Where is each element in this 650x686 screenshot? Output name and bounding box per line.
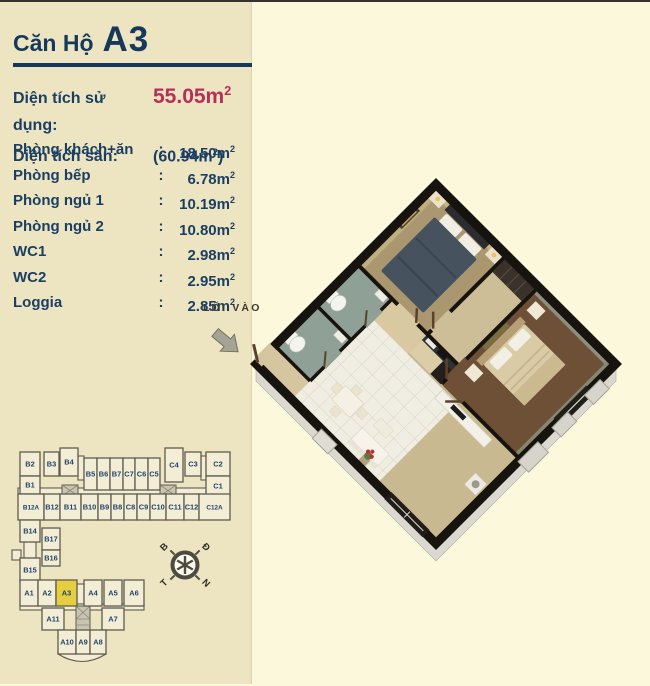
- map-unit-label: A10: [60, 638, 74, 647]
- map-unit-B12A[interactable]: B12A: [18, 494, 44, 520]
- elevator-core-icon: [76, 606, 90, 632]
- map-unit-label: C3: [188, 460, 197, 469]
- map-unit-C3[interactable]: C3: [185, 452, 201, 476]
- map-unit-C12A[interactable]: C12A: [199, 494, 230, 520]
- map-unit-A3[interactable]: A3: [56, 580, 77, 606]
- map-unit-A9[interactable]: A9: [76, 630, 90, 654]
- map-unit-label: C11: [168, 503, 181, 512]
- map-unit-B2[interactable]: B2: [20, 452, 40, 476]
- map-unit-label: A3: [62, 589, 71, 598]
- colon: :: [155, 267, 167, 293]
- room-area-value: 10.80m2: [167, 216, 235, 242]
- map-unit-B8[interactable]: B8: [111, 494, 124, 520]
- map-unit-label: B5: [86, 470, 95, 479]
- room-area-row: WC2:2.95m2: [13, 267, 235, 293]
- map-unit-label: C1: [213, 482, 222, 491]
- map-unit-label: B6: [99, 470, 108, 479]
- room-area-value: 6.78m2: [167, 165, 235, 191]
- map-unit-B17[interactable]: B17: [42, 528, 60, 550]
- map-unit-B5[interactable]: B5: [84, 458, 97, 490]
- room-list: Phòng khách+ăn:18.50m2Phòng bếp:6.78m2Ph…: [13, 139, 235, 318]
- map-unit-label: C6: [137, 470, 146, 479]
- map-unit-label: A2: [42, 589, 51, 598]
- map-unit-label: C12A: [206, 505, 223, 512]
- map-unit-B1[interactable]: B1: [20, 476, 40, 494]
- room-area-value: 2.98m2: [167, 241, 235, 267]
- map-unit-label: C8: [126, 503, 135, 512]
- title-prefix: Căn Hộ: [13, 30, 94, 57]
- room-area-row: Phòng bếp:6.78m2: [13, 165, 235, 191]
- map-unit-label: B7: [112, 470, 121, 479]
- map-unit-label: B4: [64, 458, 74, 467]
- colon: :: [155, 165, 167, 191]
- map-unit-A7[interactable]: A7: [102, 608, 124, 630]
- map-unit-B14[interactable]: B14: [20, 520, 40, 542]
- room-area-row: Phòng ngủ 1:10.19m2: [13, 190, 235, 216]
- map-unit-label: B11: [64, 503, 77, 512]
- title-unit-code: A3: [103, 20, 150, 60]
- map-unit-label: C10: [151, 503, 165, 512]
- map-unit-A2[interactable]: A2: [38, 580, 56, 606]
- compass-icon: B Đ T N: [158, 541, 212, 590]
- room-label: Loggia: [13, 292, 155, 318]
- colon: :: [155, 139, 167, 165]
- map-unit-label: C4: [169, 461, 179, 470]
- map-unit-B15[interactable]: B15: [20, 558, 40, 582]
- room-area-row: Phòng ngủ 2:10.80m2: [13, 216, 235, 242]
- map-unit-A4[interactable]: A4: [84, 580, 102, 606]
- map-unit-label: B3: [47, 460, 56, 469]
- site-map: B Đ T N B2B3B4B5B6B7C7C6C5C4C3C2B1C1B12A…: [0, 446, 260, 686]
- map-unit-A1[interactable]: A1: [20, 580, 38, 606]
- title-underline: [13, 63, 252, 67]
- map-unit-C6[interactable]: C6: [135, 458, 148, 490]
- colon: :: [155, 216, 167, 242]
- room-area-row: WC1:2.98m2: [13, 241, 235, 267]
- map-unit-C8[interactable]: C8: [124, 494, 137, 520]
- page-title: Căn Hộ A3: [13, 20, 149, 60]
- compass-east: Đ: [199, 541, 212, 554]
- map-unit-C10[interactable]: C10: [150, 494, 166, 520]
- map-unit-label: C12: [185, 503, 199, 512]
- map-unit-label: C7: [124, 470, 133, 479]
- room-area-value: 2.95m2: [167, 267, 235, 293]
- map-unit-label: B12: [45, 503, 59, 512]
- map-unit-label: A1: [24, 589, 33, 598]
- map-unit-label: C2: [213, 460, 222, 469]
- map-unit-A10[interactable]: A10: [58, 630, 76, 654]
- map-unit-label: B2: [25, 460, 34, 469]
- map-unit-B10[interactable]: B10: [81, 494, 98, 520]
- map-unit-B16[interactable]: B16: [42, 550, 60, 566]
- map-unit-label: B1: [25, 481, 34, 490]
- room-label: Phòng ngủ 1: [13, 190, 155, 216]
- map-unit-label: B16: [44, 554, 58, 563]
- map-unit-A5[interactable]: A5: [104, 580, 122, 606]
- map-unit-C7[interactable]: C7: [123, 458, 135, 490]
- map-unit-label: B12A: [23, 505, 40, 512]
- map-unit-B12[interactable]: B12: [44, 494, 60, 520]
- room-area-row: Phòng khách+ăn:18.50m2: [13, 139, 235, 165]
- map-unit-C12[interactable]: C12: [184, 494, 199, 520]
- floorplan-3d: [240, 160, 650, 590]
- room-label: Phòng khách+ăn: [13, 139, 155, 165]
- map-unit-label: B14: [23, 527, 37, 536]
- map-unit-B9[interactable]: B9: [98, 494, 111, 520]
- room-label: Phòng ngủ 2: [13, 216, 155, 242]
- map-unit-label: A8: [93, 638, 102, 647]
- map-unit-label: B17: [44, 535, 58, 544]
- map-unit-B11[interactable]: B11: [60, 494, 81, 520]
- map-unit-label: B8: [113, 503, 122, 512]
- compass-west: T: [158, 577, 170, 589]
- map-unit-C11[interactable]: C11: [166, 494, 184, 520]
- room-label: WC2: [13, 267, 155, 293]
- map-unit-A8[interactable]: A8: [90, 630, 106, 654]
- map-unit-label: B9: [100, 503, 109, 512]
- map-unit-C2[interactable]: C2: [206, 452, 230, 476]
- map-unit-C4[interactable]: C4: [165, 448, 183, 482]
- map-unit-A11[interactable]: A11: [42, 608, 64, 630]
- room-area-value: 18.50m2: [167, 139, 235, 165]
- map-unit-B7[interactable]: B7: [110, 458, 123, 490]
- room-label: WC1: [13, 241, 155, 267]
- colon: :: [155, 292, 167, 318]
- room-label: Phòng bếp: [13, 165, 155, 191]
- map-unit-label: A11: [46, 615, 59, 624]
- compass-south: N: [199, 577, 212, 590]
- map-unit-label: B15: [23, 566, 37, 575]
- map-unit-label: A9: [78, 638, 87, 647]
- colon: :: [155, 241, 167, 267]
- map-unit-B6[interactable]: B6: [97, 458, 110, 490]
- map-unit-C1[interactable]: C1: [206, 476, 230, 496]
- room-area-value: 10.19m2: [167, 190, 235, 216]
- usable-area-label: Diện tích sử dụng:: [13, 85, 153, 139]
- map-unit-label: C5: [149, 470, 158, 479]
- map-unit-label: A4: [88, 589, 98, 598]
- map-unit-A6[interactable]: A6: [124, 580, 144, 606]
- map-unit-label: B10: [83, 503, 97, 512]
- compass-north: B: [158, 541, 171, 554]
- map-unit-label: A6: [129, 589, 138, 598]
- usable-area-row: Diện tích sử dụng: 55.05m2: [13, 78, 241, 139]
- colon: :: [155, 190, 167, 216]
- map-unit-label: A7: [108, 615, 117, 624]
- map-unit-label: A5: [108, 589, 117, 598]
- usable-area-value: 55.05m2: [153, 78, 231, 110]
- map-unit-C5[interactable]: C5: [148, 458, 160, 490]
- map-unit-label: C9: [139, 503, 148, 512]
- map-unit-B4[interactable]: B4: [60, 448, 78, 476]
- map-unit-C9[interactable]: C9: [137, 494, 150, 520]
- map-unit-B3[interactable]: B3: [44, 452, 59, 476]
